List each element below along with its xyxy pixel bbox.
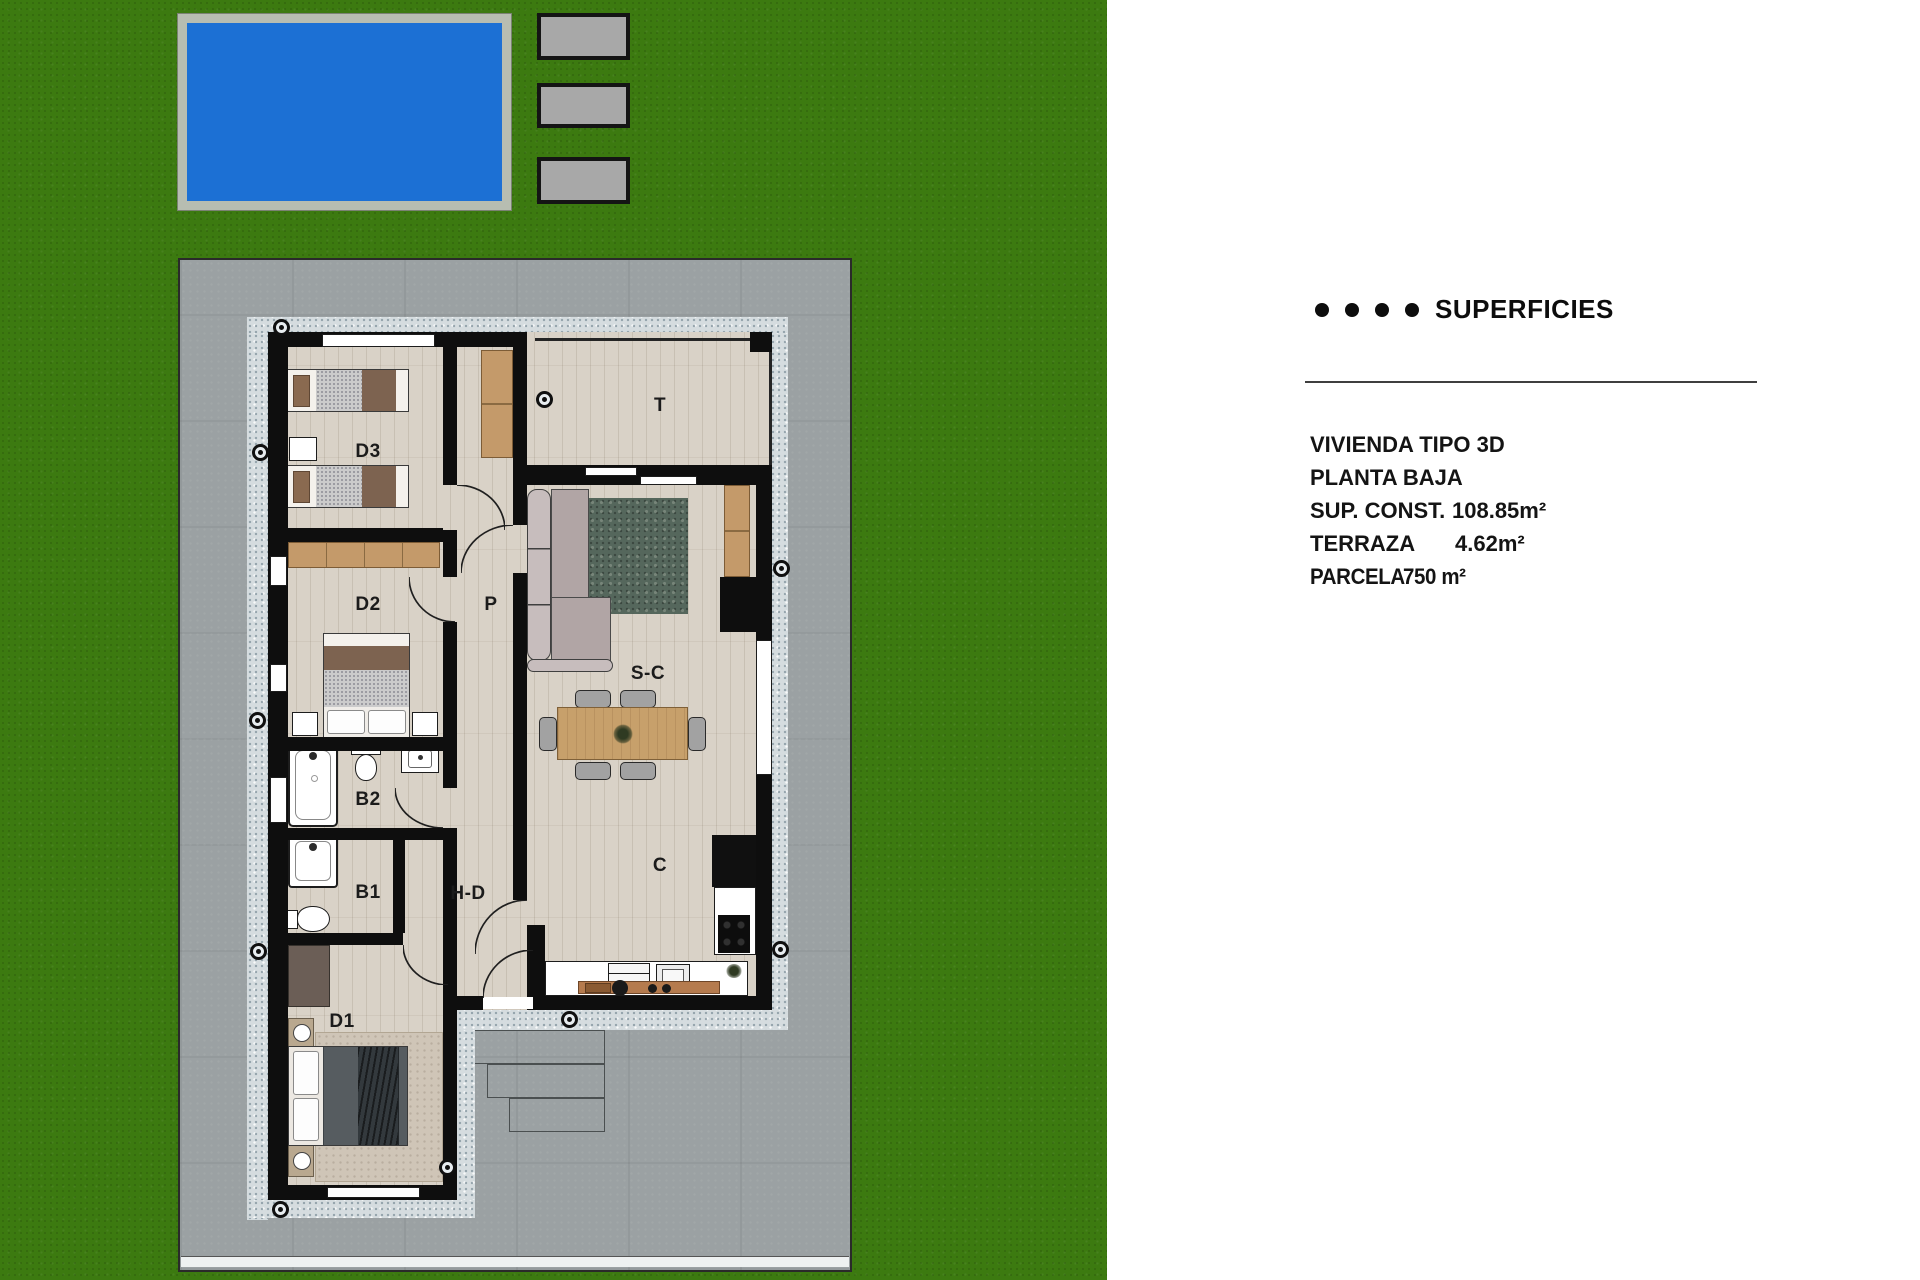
wall-d2-b2 (268, 737, 443, 751)
fridge-unit (712, 835, 756, 887)
spec-label: PARCELA (1310, 560, 1403, 593)
plot-bottom-curb (181, 1256, 849, 1267)
bed-single-2 (287, 465, 409, 508)
window-b2 (270, 664, 287, 692)
terrace-slider-2 (640, 476, 697, 485)
toilet-b1-bowl (297, 906, 330, 932)
spec-value: 108.85m² (1452, 498, 1546, 523)
spec-line-terraza: TERRAZA4.62m² (1310, 527, 1546, 560)
door-arc-d3 (457, 485, 505, 530)
wall-marker-icon (249, 712, 266, 729)
spec-line-planta: PLANTA BAJA (1310, 461, 1546, 494)
wall-b2-b1 (268, 828, 443, 840)
spec-line-sup-const: SUP. CONST.108.85m² (1310, 494, 1546, 527)
garage-slab-3 (537, 157, 630, 204)
door-arc-entrance (483, 950, 533, 998)
window-b1 (270, 777, 287, 823)
entrance-opening (483, 997, 533, 1009)
sideboard (724, 485, 750, 577)
window-kitchen (756, 640, 772, 775)
terrace-slider-1 (585, 467, 637, 476)
walkway-left (247, 333, 268, 1220)
wall-marker-icon (252, 444, 269, 461)
door-arc-b2 (395, 788, 443, 828)
wall-d3-d2 (268, 528, 443, 542)
spec-text: VIVIENDA TIPO 3D (1310, 432, 1505, 457)
entrance-step-2 (487, 1064, 605, 1098)
walkway-wing-right (457, 1030, 475, 1202)
garage-slab-2 (537, 83, 630, 128)
wall-marker-icon (250, 943, 267, 960)
wall-kitchen-pillar (720, 577, 756, 632)
sink-b1 (288, 834, 338, 888)
dining-chair (688, 717, 706, 751)
wall-marker-icon (273, 319, 290, 336)
cooktop (718, 915, 750, 953)
wall-b1-d1 (268, 933, 403, 945)
nightstand-d3 (289, 437, 317, 461)
room-label-b1: B1 (355, 882, 380, 904)
spec-label: TERRAZA (1310, 527, 1455, 560)
room-label-d2: D2 (355, 594, 380, 616)
wall-marker-icon (536, 391, 553, 408)
door-arc-hall (461, 525, 513, 573)
door-arc-kitchen (475, 900, 527, 954)
bar-board-icon (585, 983, 611, 993)
walkway-right (770, 333, 788, 1030)
wall-main-bottom-left (443, 996, 483, 1010)
dining-table (557, 707, 688, 760)
bed-single-1 (287, 369, 409, 412)
room-label-sc: S-C (631, 663, 665, 685)
wardrobe-hall (481, 350, 513, 458)
room-label-b2: B2 (355, 789, 380, 811)
window-d2 (270, 556, 287, 586)
spec-label: SUP. CONST. (1310, 494, 1452, 527)
wall-central-upper (513, 332, 527, 525)
room-label-d1: D1 (329, 1011, 354, 1033)
bed-double-d1 (288, 1046, 408, 1146)
entrance-step-3 (509, 1098, 605, 1132)
toilet-b2-bowl (355, 754, 377, 781)
spec-line-parcela: PARCELA750 m² (1310, 560, 1530, 593)
dining-chair (575, 762, 611, 780)
spec-text: PLANTA BAJA (1310, 465, 1463, 490)
bathtub-b2 (288, 743, 338, 827)
wall-a-2 (443, 530, 457, 577)
panel-title: SUPERFICIES (1435, 294, 1614, 325)
bar-bowl-icon (612, 980, 628, 996)
garage-slab-1 (537, 13, 630, 60)
nightstand-d2-left (292, 712, 318, 736)
wall-a-1 (443, 332, 457, 485)
wall-marker-icon (439, 1159, 456, 1176)
bullet-dots-icon (1315, 303, 1419, 317)
wall-a-3 (443, 622, 457, 788)
walkway-top (247, 317, 788, 333)
spec-line-vivienda: VIVIENDA TIPO 3D (1310, 428, 1546, 461)
wardrobe-d1 (288, 945, 330, 1007)
walkway-bottom-main (457, 1010, 788, 1030)
nightstand-d1-bottom (288, 1143, 314, 1177)
wall-main-bottom-right (533, 996, 772, 1010)
room-label-p: P (484, 594, 497, 616)
wall-b1-right (393, 832, 405, 933)
nightstand-d1-top (288, 1018, 314, 1048)
spec-value: 750 m² (1403, 564, 1466, 589)
bar-item-icon (648, 984, 657, 993)
dining-chair (620, 762, 656, 780)
wall-central-mid (513, 573, 527, 900)
window-d1 (327, 1187, 420, 1198)
counter-plant-icon (726, 964, 742, 978)
window-d3 (322, 334, 435, 347)
room-label-d3: D3 (355, 441, 380, 463)
wall-marker-icon (772, 941, 789, 958)
room-label-t: T (654, 395, 666, 417)
swimming-pool (178, 14, 511, 210)
dining-chair (620, 690, 656, 708)
wardrobe-d2 (288, 542, 440, 568)
room-label-c: C (653, 855, 667, 877)
pool-water (187, 23, 502, 201)
table-plant-icon (613, 724, 633, 744)
room-label-hd: H-D (450, 883, 485, 905)
door-arc-d2 (409, 577, 455, 622)
terrace-edge-top (535, 338, 772, 341)
wall-marker-icon (561, 1011, 578, 1028)
divider-line (1305, 381, 1757, 383)
panel-title-row: SUPERFICIES (1315, 294, 1614, 325)
door-arc-d1 (403, 945, 448, 985)
wall-marker-icon (272, 1201, 289, 1218)
bar-item-icon (662, 984, 671, 993)
dining-chair (539, 717, 557, 751)
wall-left (268, 332, 288, 1200)
spec-list: VIVIENDA TIPO 3D PLANTA BAJA SUP. CONST.… (1310, 428, 1546, 593)
floorplan-page: D3D2PTS-CB2B1H-DCD1 SUPERFICIES VIVIENDA… (0, 0, 1920, 1280)
entrance-step-1 (465, 1030, 605, 1064)
bed-double-d2 (323, 633, 410, 738)
terrace-edge-right (769, 338, 772, 465)
dining-chair (575, 690, 611, 708)
wall-marker-icon (773, 560, 790, 577)
nightstand-d2-right (412, 712, 438, 736)
spec-value: 4.62m² (1455, 531, 1525, 556)
terrace-post (750, 332, 772, 352)
